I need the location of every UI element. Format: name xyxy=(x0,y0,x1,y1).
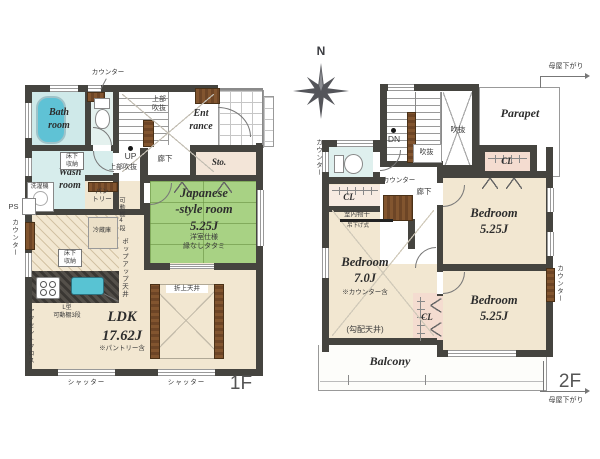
counter-label: カウンター xyxy=(555,262,562,306)
window xyxy=(25,103,32,138)
shutter-window xyxy=(158,369,215,376)
kitchen-sink xyxy=(71,277,104,295)
counter-label: カウンター xyxy=(10,218,17,258)
closet-door-mark xyxy=(506,178,522,189)
annotation-line xyxy=(540,76,541,88)
underfloor-storage-label: 床下 収納 xyxy=(60,152,84,170)
dn-marker xyxy=(391,128,396,133)
bedroom-label: Bedroom 5.25J xyxy=(462,292,526,325)
void-label: 吹抜 xyxy=(444,125,472,135)
balcony-label: Balcony xyxy=(362,354,418,370)
burner xyxy=(49,289,56,296)
pantry-label: パン トリー xyxy=(89,188,115,205)
shutter-label: シャッター xyxy=(162,379,211,387)
toilet-icon xyxy=(334,155,344,173)
wall xyxy=(479,145,537,152)
door-gap xyxy=(373,152,380,172)
window xyxy=(547,188,554,212)
wall xyxy=(329,177,385,184)
coffered-beam xyxy=(214,284,224,359)
ldk-label: LDK 17.62J xyxy=(96,308,148,346)
l-shelf-label: L型 可動棚3段 xyxy=(42,305,92,321)
accent-cloth-label: アクセントクロス xyxy=(27,306,33,366)
floor1-label: 1F xyxy=(224,372,258,397)
up-label: UP xyxy=(120,151,141,162)
balcony-tick xyxy=(348,375,349,385)
toilet-icon xyxy=(95,109,110,129)
hall-label: 廊下 xyxy=(152,154,178,164)
toilet-icon xyxy=(94,98,110,109)
window xyxy=(257,190,264,246)
stove xyxy=(36,277,60,299)
underfloor-storage-label: 床下 収納 xyxy=(58,249,82,267)
movable-shelf-label: 可動棚4段 xyxy=(118,193,124,235)
window xyxy=(388,84,414,91)
ps-box xyxy=(22,198,36,215)
closet-door-mark xyxy=(431,299,442,313)
compass-icon xyxy=(292,62,350,120)
japanese-room-label: Japanese -style room 5.25J xyxy=(168,185,240,234)
entrance-edge xyxy=(218,88,263,90)
sloped-ceiling-label: (勾配天井) xyxy=(333,325,397,335)
window xyxy=(337,140,373,147)
floor2-label: 2F xyxy=(552,370,588,395)
void-label: 上部吹抜 xyxy=(102,163,144,172)
window xyxy=(322,248,329,278)
coffered-label: 折上天井 xyxy=(166,285,208,293)
wall xyxy=(472,84,479,178)
annotation-line xyxy=(540,76,587,77)
compass-north-label: N xyxy=(313,44,329,60)
bedroom-label: Bedroom 5.25J xyxy=(462,205,526,238)
ps-label: PS xyxy=(6,202,21,212)
left-counter xyxy=(25,222,35,250)
hall-label: 廊下 xyxy=(412,187,436,197)
window xyxy=(547,232,554,256)
counter-label: カウンター xyxy=(86,69,130,77)
wall xyxy=(144,175,256,181)
drying-bar xyxy=(340,219,393,222)
bedroom-note: ※カウンター含 xyxy=(333,289,397,297)
japanese-room-note: 洋室仕様 縁なしタタミ xyxy=(168,233,240,251)
burner xyxy=(49,281,56,288)
void-label: 吹抜 xyxy=(414,148,439,157)
sliding-door xyxy=(170,264,214,269)
right-counter xyxy=(546,268,555,302)
closet-label: CL xyxy=(340,192,358,204)
storage-label: Sto. xyxy=(206,157,232,169)
balcony-tick xyxy=(425,375,426,385)
shutter-window xyxy=(58,369,115,376)
porch-step xyxy=(263,96,274,147)
counter-label: カウンター xyxy=(382,177,416,185)
window xyxy=(448,350,516,357)
annotation-line xyxy=(543,361,544,391)
counter-label: カウンター xyxy=(314,138,321,178)
wall xyxy=(530,145,537,178)
annotation-arrow xyxy=(585,73,590,79)
bath-label: Bath room xyxy=(40,106,78,132)
roof-down-label: 母屋下がり xyxy=(541,396,591,405)
shutter-label: シャッター xyxy=(62,379,111,387)
closet-label: CL xyxy=(418,312,436,324)
floor-plan: カウンター Bath room Wash room 洗濯機 床下 収納 PS カ… xyxy=(0,0,600,459)
wall xyxy=(214,263,256,270)
parapet-label: Parapet xyxy=(494,106,546,122)
hanging-label: 吊下げ式 xyxy=(343,223,373,230)
closet-door-mark xyxy=(482,178,498,189)
burner xyxy=(40,281,47,288)
wall xyxy=(437,264,553,271)
balcony-rail xyxy=(320,381,543,382)
window xyxy=(25,158,32,176)
coffered-cross xyxy=(151,285,221,356)
window xyxy=(50,85,78,92)
entrance-label: Ent rance xyxy=(180,107,222,133)
burner xyxy=(40,289,47,296)
window xyxy=(322,152,329,172)
toilet-icon xyxy=(344,154,363,174)
void-label: 上部 吹抜 xyxy=(148,95,170,113)
bedroom-label: Bedroom 7.0J xyxy=(335,254,395,287)
wall xyxy=(85,175,119,181)
roof-down-label: 母屋下がり xyxy=(541,62,591,71)
wall xyxy=(479,145,485,178)
closet-label: CL xyxy=(498,156,516,168)
fridge-label: 冷蔵庫 xyxy=(89,228,115,236)
entrance-edge xyxy=(262,88,263,145)
wall xyxy=(144,263,170,270)
wall xyxy=(256,143,263,376)
dn-label: DN xyxy=(383,134,405,145)
popup-ceiling-label: ポップアップ天井 xyxy=(120,233,127,303)
ldk-note: ※パントリー含 xyxy=(92,345,152,353)
window xyxy=(25,253,32,277)
closet-door-mark xyxy=(431,323,442,337)
washer-label: 洗濯機 xyxy=(26,184,53,192)
